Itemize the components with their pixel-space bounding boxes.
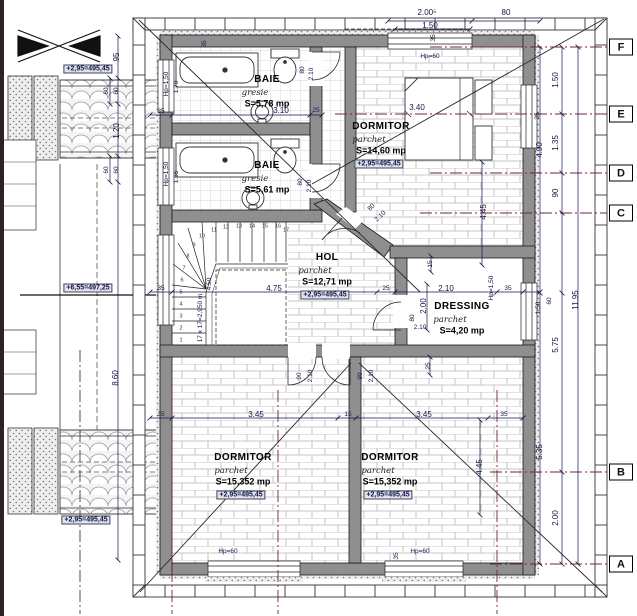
staircase — [172, 222, 288, 345]
floor-plan-canvas: 2.00⁵801.5035Hp=60359560601.2060608.60+2… — [0, 0, 637, 616]
grid-axis-A: A — [609, 556, 633, 573]
image-edge-strip — [0, 0, 4, 616]
floor-plan-drawing — [0, 0, 637, 616]
grid-axis-C: C — [609, 205, 633, 222]
grid-axis-F: F — [609, 39, 633, 56]
grid-axis-D: D — [609, 165, 633, 182]
sink-2 — [242, 187, 264, 209]
bathtub-2 — [176, 143, 258, 177]
grid-axis-E: E — [609, 106, 633, 123]
compass-icon — [18, 30, 100, 62]
bathtub-1 — [176, 53, 258, 87]
grid-axis-B: B — [609, 464, 633, 481]
sink-1 — [251, 101, 273, 123]
